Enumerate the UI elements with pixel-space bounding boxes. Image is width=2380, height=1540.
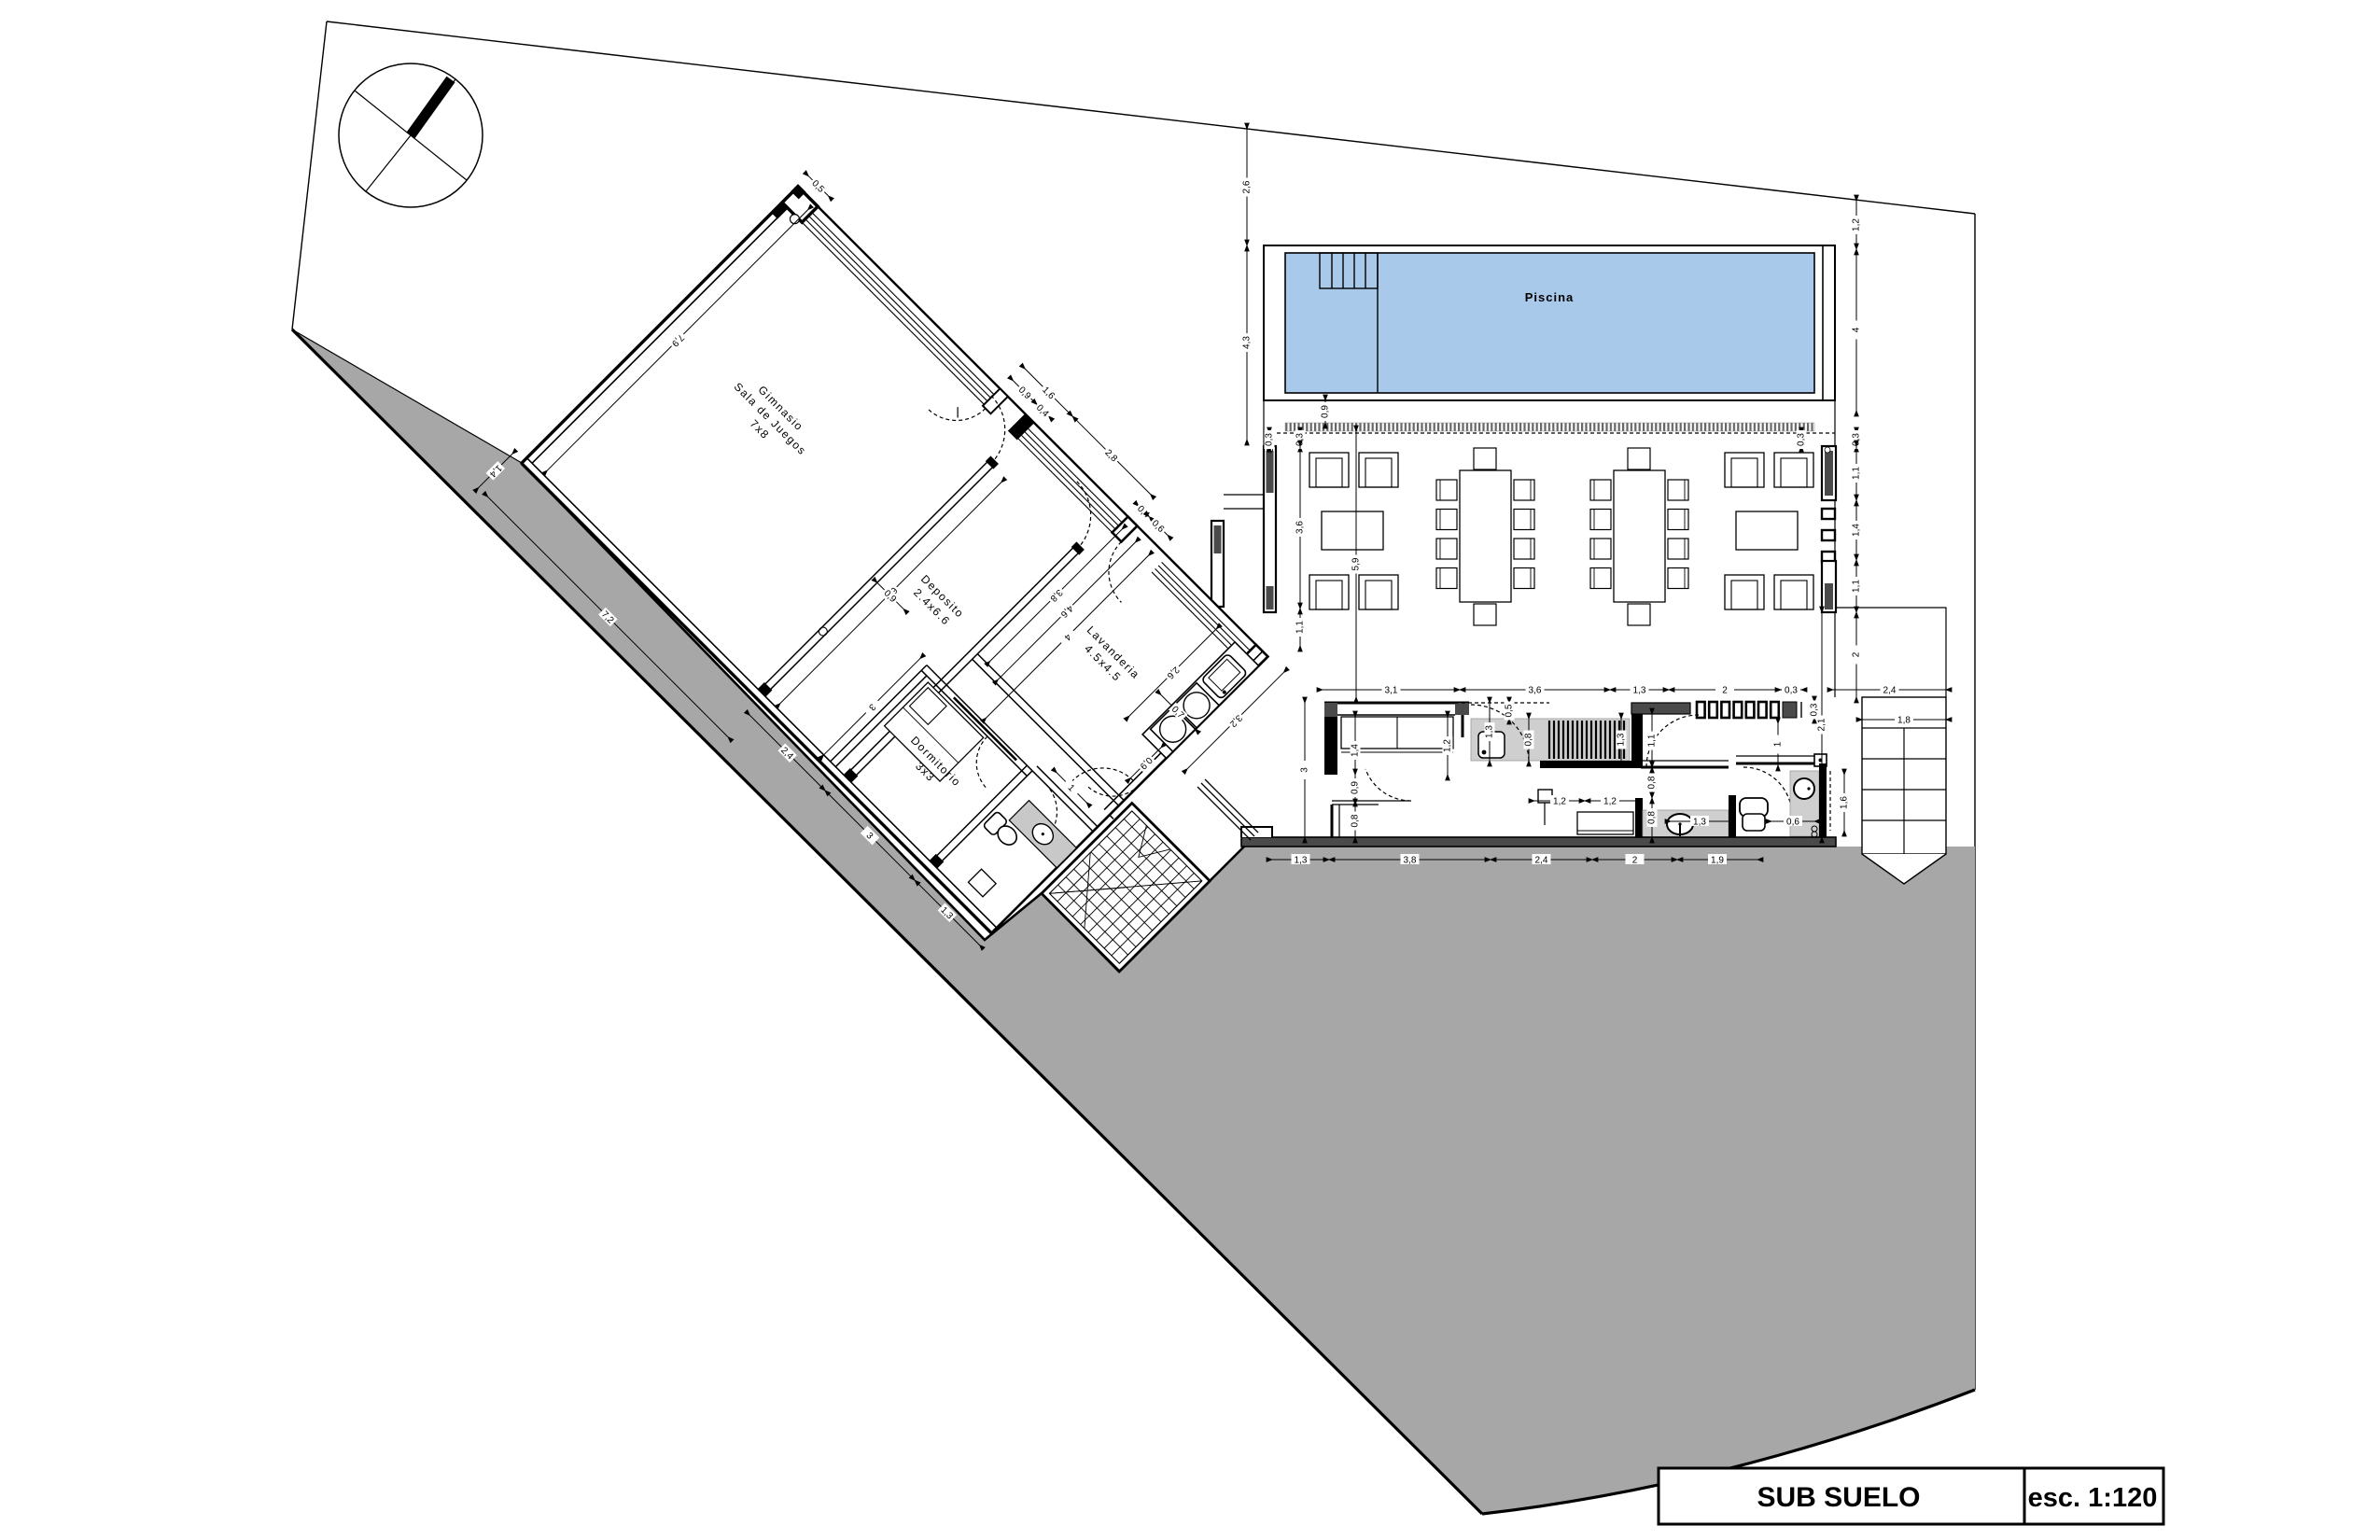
svg-text:1,1: 1,1 [1852,580,1862,593]
svg-text:0,5: 0,5 [1505,704,1515,717]
svg-text:1,1: 1,1 [1852,467,1862,480]
svg-text:0,3: 0,3 [1810,703,1820,716]
svg-text:3,6: 3,6 [1295,521,1306,534]
svg-text:0,6: 0,6 [1786,818,1799,828]
svg-text:0,3: 0,3 [1797,433,1807,446]
svg-text:4: 4 [1852,327,1862,332]
svg-text:2: 2 [1632,856,1638,866]
svg-text:1,8: 1,8 [1897,716,1911,726]
svg-text:0,8: 0,8 [1351,814,1361,827]
svg-text:0,8: 0,8 [1647,776,1658,789]
svg-text:1,6: 1,6 [1840,796,1850,809]
svg-text:1,3: 1,3 [1485,725,1495,738]
svg-text:Piscina: Piscina [1525,290,1575,304]
svg-text:3,8: 3,8 [1404,856,1417,866]
svg-text:1: 1 [1773,741,1784,747]
svg-text:2: 2 [1852,651,1862,657]
svg-text:1,4: 1,4 [1351,744,1361,757]
svg-text:0,3: 0,3 [1295,433,1306,446]
svg-text:esc. 1:120: esc. 1:120 [2028,1483,2158,1513]
svg-text:3,1: 3,1 [1385,686,1398,696]
svg-text:0,9: 0,9 [1351,781,1361,794]
svg-text:1,2: 1,2 [1603,797,1617,807]
svg-text:1,1: 1,1 [1647,734,1658,747]
svg-text:1,3: 1,3 [1617,733,1627,746]
svg-text:5,9: 5,9 [1351,557,1362,570]
svg-text:1,3: 1,3 [1295,856,1308,866]
svg-text:SUB SUELO: SUB SUELO [1757,1482,1920,1513]
svg-text:1,2: 1,2 [1553,797,1566,807]
svg-text:1,4: 1,4 [1852,524,1862,537]
svg-text:1,2: 1,2 [1852,218,1862,231]
svg-text:0,8: 0,8 [1524,733,1534,746]
svg-text:3: 3 [1300,767,1310,773]
svg-text:4,3: 4,3 [1242,336,1253,349]
svg-text:0,3: 0,3 [1785,686,1798,696]
svg-text:2,4: 2,4 [1883,686,1897,696]
svg-text:2: 2 [1722,686,1728,696]
svg-text:0,9: 0,9 [1321,405,1331,418]
svg-text:1,1: 1,1 [1295,621,1306,634]
svg-text:0,8: 0,8 [1647,811,1658,824]
svg-text:0,3: 0,3 [1265,433,1275,446]
svg-text:2,1: 2,1 [1817,718,1827,731]
svg-text:3,6: 3,6 [1529,686,1542,696]
svg-text:1,3: 1,3 [1633,686,1646,696]
svg-text:1,3: 1,3 [1693,818,1706,828]
svg-text:0,3: 0,3 [1852,433,1862,446]
svg-text:1,9: 1,9 [1711,856,1724,866]
svg-text:1,2: 1,2 [1443,739,1453,752]
svg-text:2,4: 2,4 [1535,856,1548,866]
svg-text:2,6: 2,6 [1242,180,1253,193]
